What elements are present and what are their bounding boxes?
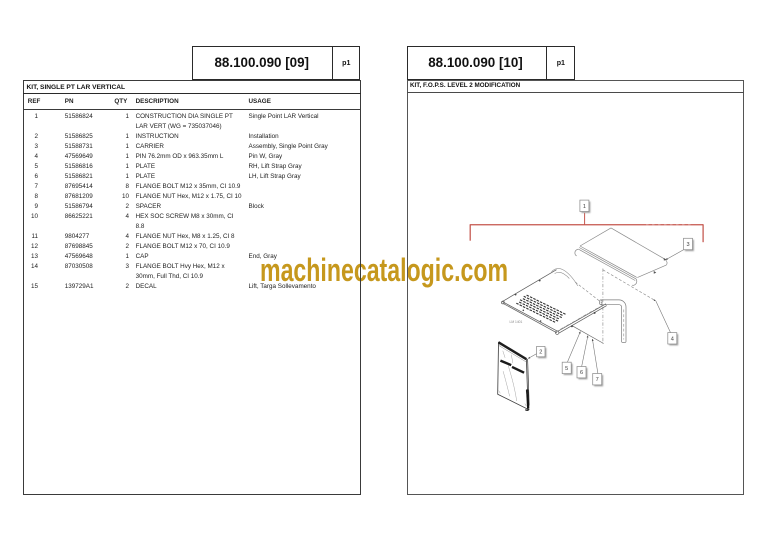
- svg-text:4: 4: [671, 336, 674, 342]
- svg-text:5: 5: [565, 366, 568, 372]
- svg-text:1: 1: [583, 204, 586, 210]
- svg-text:2: 2: [539, 350, 542, 356]
- svg-text:7: 7: [596, 377, 599, 383]
- svg-text:6: 6: [580, 370, 583, 376]
- svg-text:LM 1401: LM 1401: [510, 320, 523, 324]
- svg-text:3: 3: [686, 242, 689, 248]
